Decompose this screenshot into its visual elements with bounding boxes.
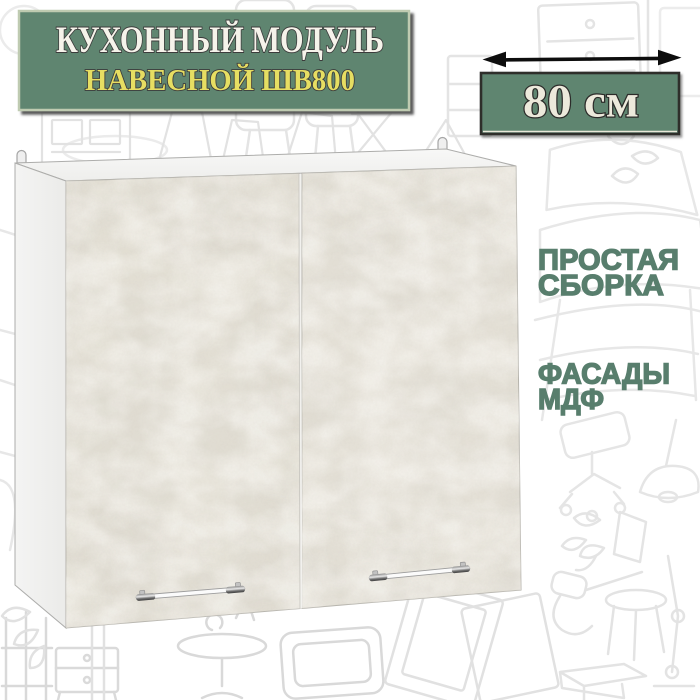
svg-text:НАВЕСНОЙ ШВ800: НАВЕСНОЙ ШВ800 — [85, 63, 355, 97]
svg-text:80 см: 80 см — [523, 77, 639, 128]
svg-text:КУХОННЫЙ МОДУЛЬ: КУХОННЫЙ МОДУЛЬ — [56, 19, 384, 61]
svg-text:МДФ: МДФ — [538, 384, 604, 416]
svg-text:СБОРКА: СБОРКА — [538, 270, 664, 302]
